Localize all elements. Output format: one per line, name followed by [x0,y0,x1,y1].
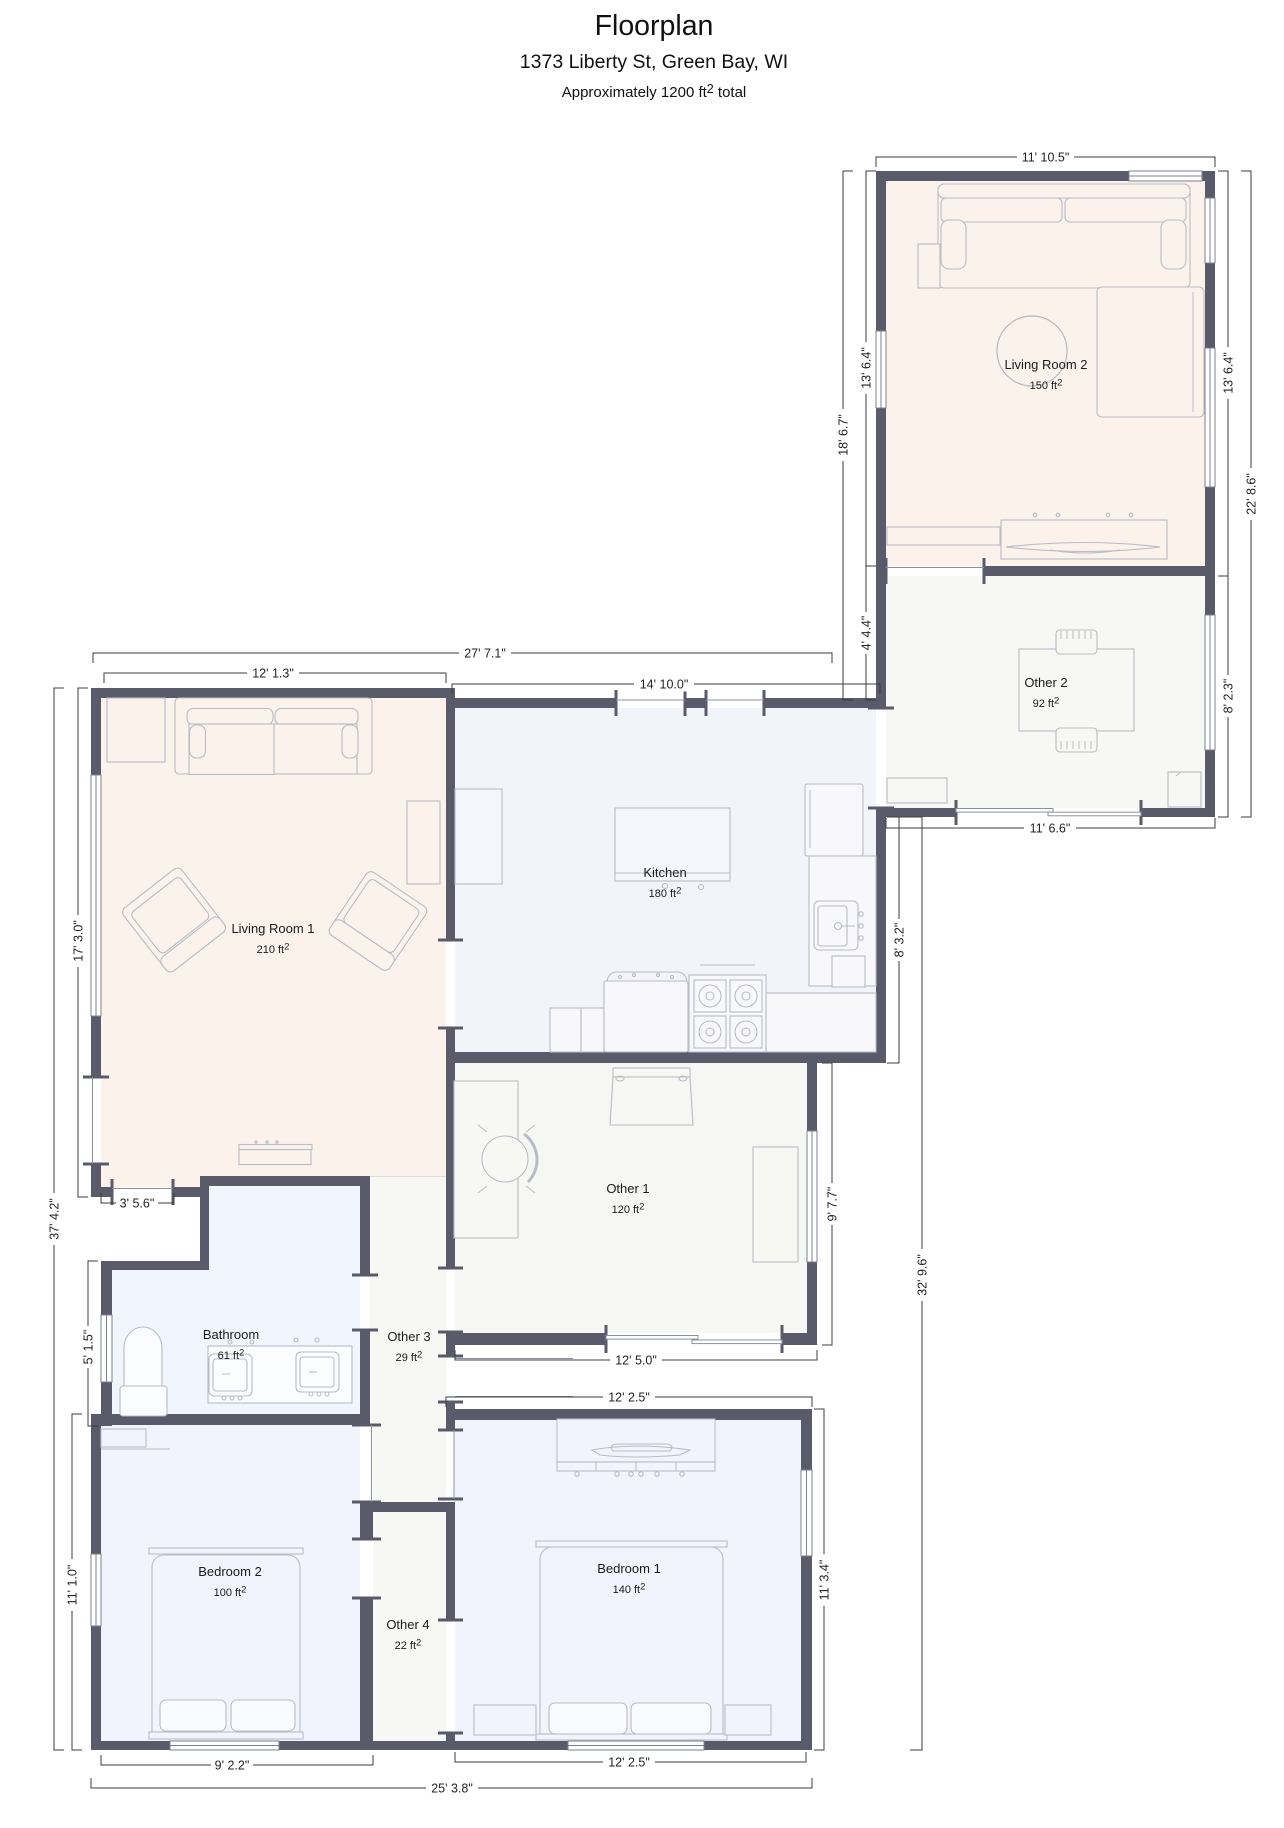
svg-text:12' 2.5": 12' 2.5" [608,1391,650,1405]
svg-text:4' 4.4": 4' 4.4" [860,616,874,651]
svg-text:25' 3.8": 25' 3.8" [431,1782,473,1796]
svg-text:Other 4: Other 4 [386,1617,429,1632]
svg-text:5' 1.5": 5' 1.5" [82,1330,96,1365]
svg-text:13' 6.4": 13' 6.4" [1222,352,1236,394]
svg-text:Bedroom 1: Bedroom 1 [597,1561,661,1576]
svg-text:8' 3.2": 8' 3.2" [893,923,907,958]
svg-text:Kitchen: Kitchen [643,865,686,880]
svg-text:9' 7.7": 9' 7.7" [826,1187,840,1222]
svg-text:14' 10.0": 14' 10.0" [640,678,689,692]
svg-text:12' 1.3": 12' 1.3" [252,667,294,681]
svg-text:1373 Liberty St, Green Bay, WI: 1373 Liberty St, Green Bay, WI [520,51,788,73]
svg-text:11' 1.0": 11' 1.0" [66,1565,80,1606]
svg-text:Living Room 2: Living Room 2 [1004,357,1087,372]
svg-text:8' 2.3": 8' 2.3" [1222,679,1236,714]
svg-text:12' 2.5": 12' 2.5" [608,1756,650,1770]
svg-text:Other 1: Other 1 [606,1181,649,1196]
svg-text:Other 2: Other 2 [1024,675,1067,690]
svg-text:Other 3: Other 3 [387,1329,430,1344]
svg-text:Bathroom: Bathroom [203,1327,259,1342]
svg-text:3' 5.6": 3' 5.6" [120,1197,155,1211]
svg-text:9' 2.2": 9' 2.2" [215,1759,250,1773]
svg-text:17' 3.0": 17' 3.0" [72,920,86,962]
svg-text:11' 10.5": 11' 10.5" [1022,151,1070,165]
svg-text:Living Room 1: Living Room 1 [231,921,314,936]
svg-text:Floorplan: Floorplan [595,10,714,42]
svg-text:27' 7.1": 27' 7.1" [464,647,506,661]
svg-text:22' 8.6": 22' 8.6" [1245,473,1259,515]
svg-text:Bedroom 2: Bedroom 2 [198,1564,262,1579]
svg-text:18' 6.7": 18' 6.7" [837,414,851,456]
svg-text:Approximately 1200 ft2 total: Approximately 1200 ft2 total [562,82,747,101]
svg-text:13' 6.4": 13' 6.4" [860,347,874,389]
svg-text:37' 4.2": 37' 4.2" [48,1198,62,1240]
svg-text:11' 6.6": 11' 6.6" [1030,822,1071,836]
svg-text:32' 9.6": 32' 9.6" [916,1254,930,1296]
svg-text:11' 3.4": 11' 3.4" [818,1560,832,1601]
svg-text:12' 5.0": 12' 5.0" [615,1354,657,1368]
